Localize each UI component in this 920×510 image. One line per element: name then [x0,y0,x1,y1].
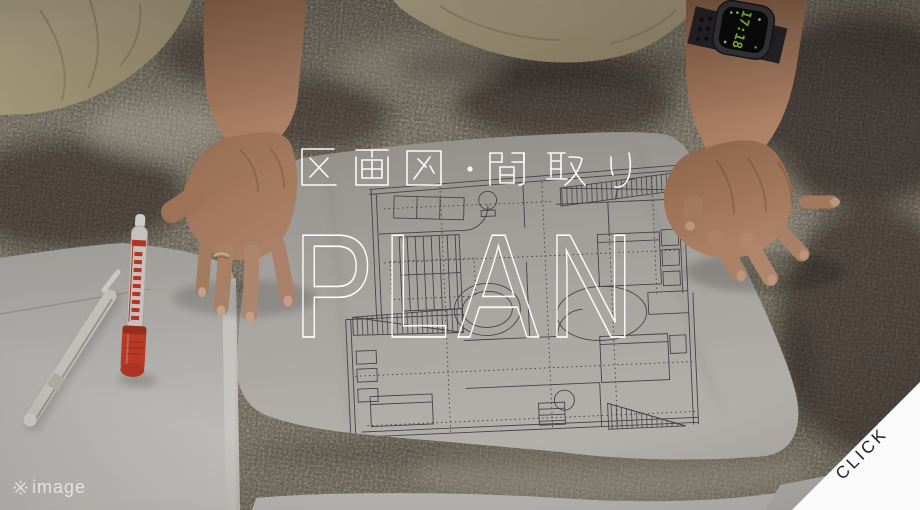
left-index-finger [278,246,288,298]
image-note-text: image [32,477,86,498]
left-thumb [172,196,196,212]
left-ring-finger [221,250,226,308]
left-middle-finger [250,252,252,314]
image-note: image [13,477,86,498]
plan-banner-link[interactable]: 17:18 区画図・間取り PLAN [0,0,920,510]
left-pinky-finger [202,244,206,290]
reference-mark-icon [13,480,28,495]
photo-illustration: 17:18 [0,0,920,510]
